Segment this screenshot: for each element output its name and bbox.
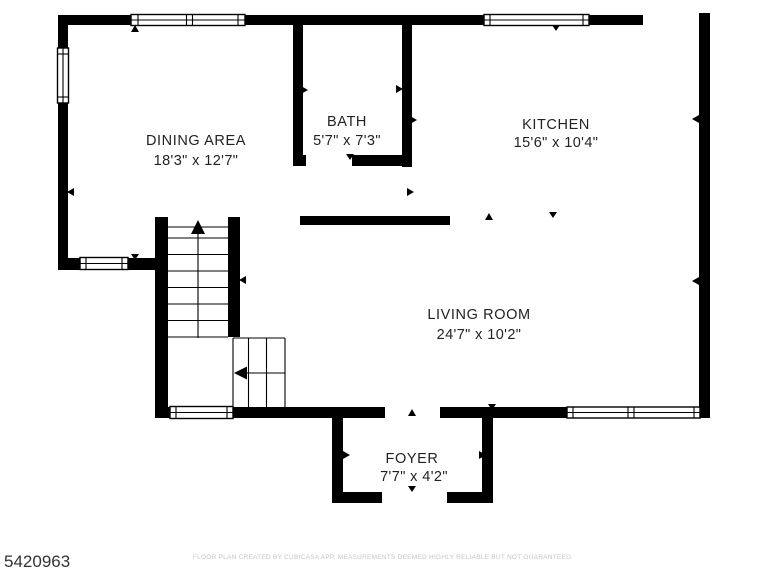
marker-right-icon xyxy=(301,86,308,94)
room-label-living-name: LIVING ROOM xyxy=(427,307,530,323)
wall-right xyxy=(699,13,710,418)
marker-left-icon xyxy=(692,277,699,285)
window-dining-top xyxy=(131,15,245,26)
marker-right-icon xyxy=(407,188,414,196)
room-label-bath-dims: 5'7" x 7'3" xyxy=(313,133,381,149)
marker-right-icon xyxy=(396,85,403,93)
stair-left-arrow-icon xyxy=(234,367,247,380)
window-kitchen-top xyxy=(484,15,589,26)
disclaimer-text: FLOOR PLAN CREATED BY CUBICASA APP. MEAS… xyxy=(193,554,573,561)
window-dining-bottom xyxy=(80,258,128,270)
window-left xyxy=(58,48,69,103)
floor-plan: DINING AREA 18'3" x 12'7" BATH 5'7" x 7'… xyxy=(0,0,768,576)
marker-left-icon xyxy=(692,115,699,123)
window-stairs-bottom xyxy=(170,407,233,419)
marker-right-icon xyxy=(410,116,417,124)
wall-foyer-bottom-left xyxy=(332,492,382,503)
wall-stairs-right xyxy=(228,217,240,337)
room-label-foyer-dims: 7'7" x 4'2" xyxy=(380,469,448,485)
interior-walls xyxy=(155,25,450,418)
wall-bath-bottom xyxy=(352,155,412,166)
plan-id: 5420963 xyxy=(4,552,70,571)
wall-foyer-right xyxy=(482,418,493,503)
room-label-foyer-name: FOYER xyxy=(386,451,439,467)
room-label-living-dims: 24'7" x 10'2" xyxy=(437,327,522,343)
room-label-kitchen-dims: 15'6" x 10'4" xyxy=(514,135,599,151)
marker-down-icon xyxy=(549,212,557,218)
stairs xyxy=(168,227,285,407)
marker-left-icon xyxy=(67,188,74,196)
room-label-bath-name: BATH xyxy=(327,114,367,130)
floor-plan-drawing: DINING AREA 18'3" x 12'7" BATH 5'7" x 7'… xyxy=(0,0,768,576)
wall-kitchen-half xyxy=(300,216,450,225)
room-label-kitchen-name: KITCHEN xyxy=(522,117,590,133)
marker-down-icon xyxy=(552,25,560,31)
marker-up-icon xyxy=(485,213,493,220)
room-label-dining-name: DINING AREA xyxy=(146,133,246,149)
wall-stairs-left xyxy=(155,217,168,418)
wall-bath-bottom-stub xyxy=(293,155,306,166)
marker-up-icon xyxy=(408,409,416,416)
wall-foyer-left xyxy=(332,418,343,503)
wall-bath-left xyxy=(293,25,303,165)
wall-foyer-bottom-right xyxy=(447,492,493,503)
window-living-bottom xyxy=(567,407,700,418)
wall-bottom-mid xyxy=(440,407,567,418)
marker-down-icon xyxy=(408,486,416,492)
marker-right-icon xyxy=(343,451,350,459)
marker-left-icon xyxy=(239,276,246,284)
wall-bath-right xyxy=(402,25,412,167)
room-labels: DINING AREA 18'3" x 12'7" BATH 5'7" x 7'… xyxy=(146,114,598,485)
room-label-dining-dims: 18'3" x 12'7" xyxy=(154,153,239,169)
